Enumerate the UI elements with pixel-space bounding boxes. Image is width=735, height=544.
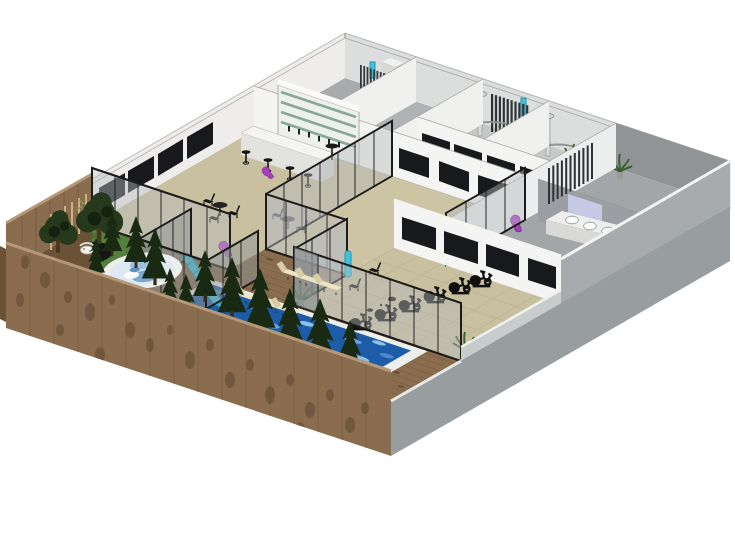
fence-west-nub bbox=[0, 246, 6, 322]
render-canvas: 3D cutaway floor plan - wellness spa and… bbox=[0, 0, 735, 544]
floorplan-3d-render: 3D cutaway floor plan - wellness spa and… bbox=[0, 0, 735, 544]
